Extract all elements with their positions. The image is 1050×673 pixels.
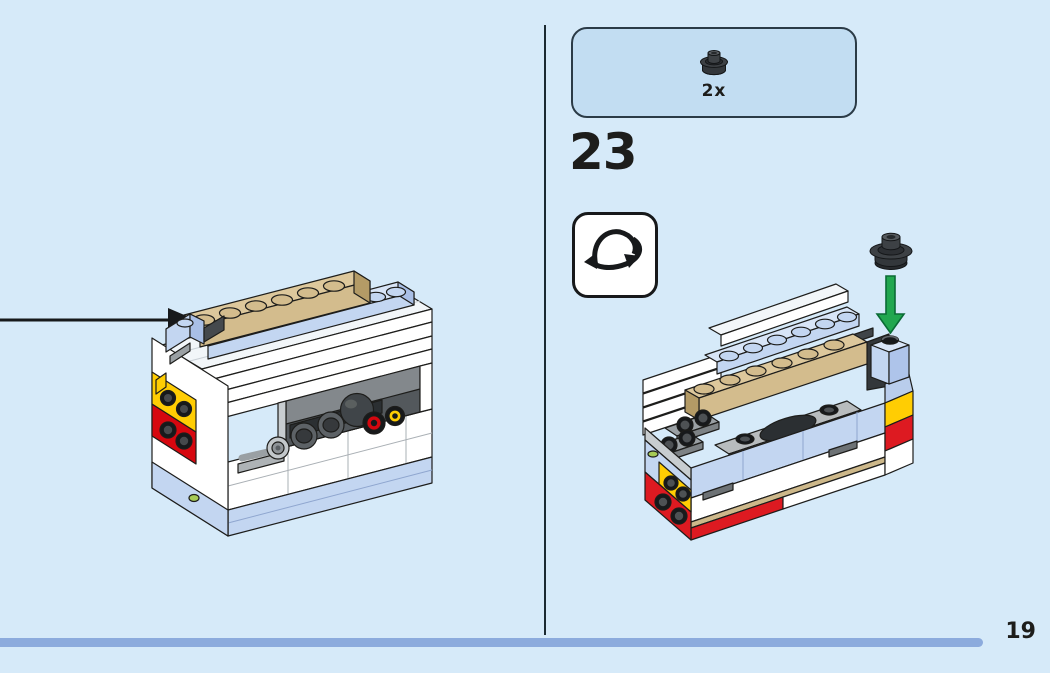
instruction-page: 2x 23 [0,0,1050,673]
green-placement-arrow [877,276,904,333]
round-plate-dark-gray-part-icon [694,46,734,80]
page-number: 19 [1005,619,1036,644]
parts-callout-box: 2x [571,27,857,118]
part-quantity: 2x [702,83,727,100]
lego-model-rear-view [633,228,933,558]
panel-divider [544,25,546,635]
lego-model-front-left-view [138,230,438,550]
dark-gray-round-plate-part [870,233,912,269]
step-number: 23 [569,127,637,177]
footer-progress-bar [0,638,983,647]
